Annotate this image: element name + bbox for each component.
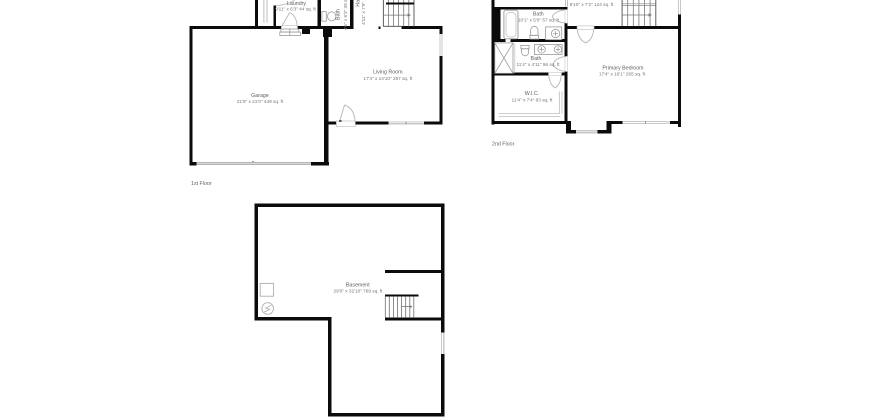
- svg-text:11'4" x 7'4" 83 sq. ft: 11'4" x 7'4" 83 sq. ft: [512, 98, 553, 103]
- svg-text:21'5" x 21'0" 449 sq. ft: 21'5" x 21'0" 449 sq. ft: [237, 99, 284, 104]
- svg-text:4'11" x 7'9": 4'11" x 7'9": [361, 2, 366, 25]
- svg-text:17'4" x 14'10" 257 sq. ft: 17'4" x 14'10" 257 sq. ft: [363, 76, 413, 81]
- svg-text:Bath: Bath: [336, 9, 342, 20]
- svg-text:2nd Floor: 2nd Floor: [492, 142, 515, 148]
- svg-text:Garage: Garage: [251, 93, 269, 99]
- svg-text:29'0" x 32'10" 769 sq. ft: 29'0" x 32'10" 769 sq. ft: [334, 288, 384, 293]
- svg-text:11'4" x 4'11" 56 sq. ft: 11'4" x 4'11" 56 sq. ft: [517, 62, 561, 67]
- svg-text:4'6" x 6'3" 39 sq. ft: 4'6" x 6'3" 39 sq. ft: [343, 0, 348, 30]
- svg-text:W.I.C.: W.I.C.: [525, 91, 539, 97]
- svg-text:Living Room: Living Room: [373, 70, 403, 76]
- svg-text:17'4" x 16'1" 265 sq. ft: 17'4" x 16'1" 265 sq. ft: [599, 72, 646, 77]
- svg-text:9'11" x 6'3" 44 sq. ft: 9'11" x 6'3" 44 sq. ft: [275, 7, 316, 12]
- svg-text:8'10" x 7'2" 124 sq. ft: 8'10" x 7'2" 124 sq. ft: [570, 2, 614, 7]
- svg-text:1st Floor: 1st Floor: [191, 181, 212, 187]
- svg-text:10'1" x 5'0" 57 sq. ft: 10'1" x 5'0" 57 sq. ft: [518, 18, 560, 23]
